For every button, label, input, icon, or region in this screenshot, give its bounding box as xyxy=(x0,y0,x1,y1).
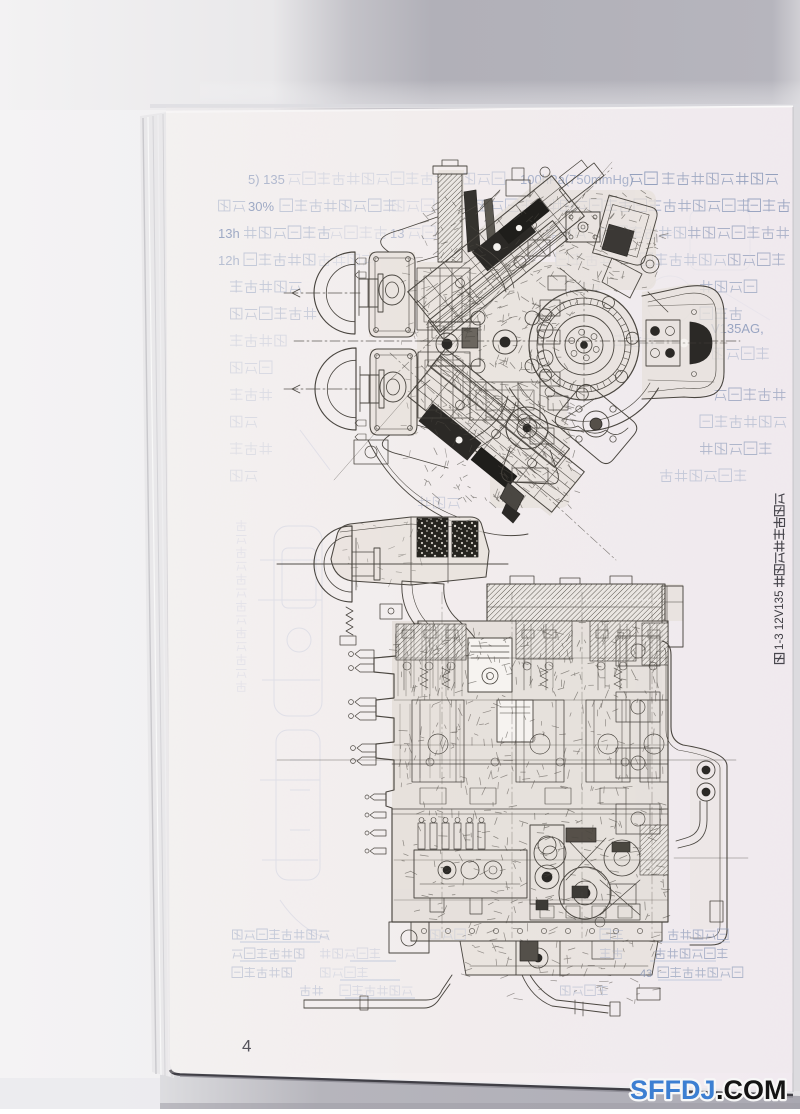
svg-text:5) 135: 5) 135 xyxy=(248,172,285,187)
svg-text:.COM: .COM xyxy=(716,1075,787,1105)
svg-text:13h: 13h xyxy=(218,226,240,241)
svg-text:13: 13 xyxy=(390,226,404,241)
svg-text:12h: 12h xyxy=(218,253,240,268)
svg-text:4: 4 xyxy=(242,1037,251,1056)
svg-text:30%: 30% xyxy=(248,199,274,214)
svg-text:1-3 12V135: 1-3 12V135 xyxy=(774,591,786,650)
svg-text:SFFDJ: SFFDJ xyxy=(630,1075,716,1105)
svg-text:43: 43 xyxy=(640,968,652,980)
